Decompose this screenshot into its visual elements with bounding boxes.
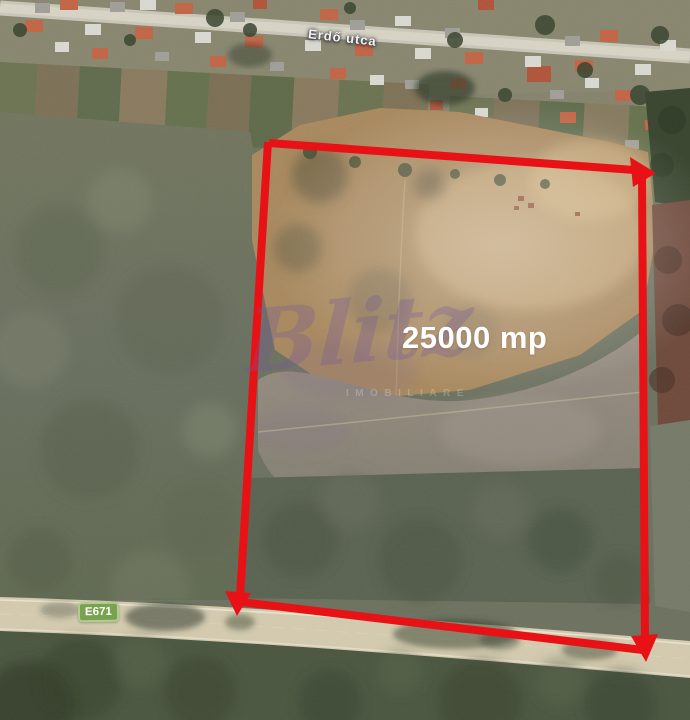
watermark-subtext: IMOBILIARE [346, 388, 470, 399]
area-label: 25000 mp [402, 320, 547, 356]
plot-outline-right [642, 177, 645, 641]
aerial-map: Erdő utca Blitz IMOBILIARE 25000 mp E671 [0, 0, 690, 720]
route-badge-e671: E671 [78, 602, 119, 623]
